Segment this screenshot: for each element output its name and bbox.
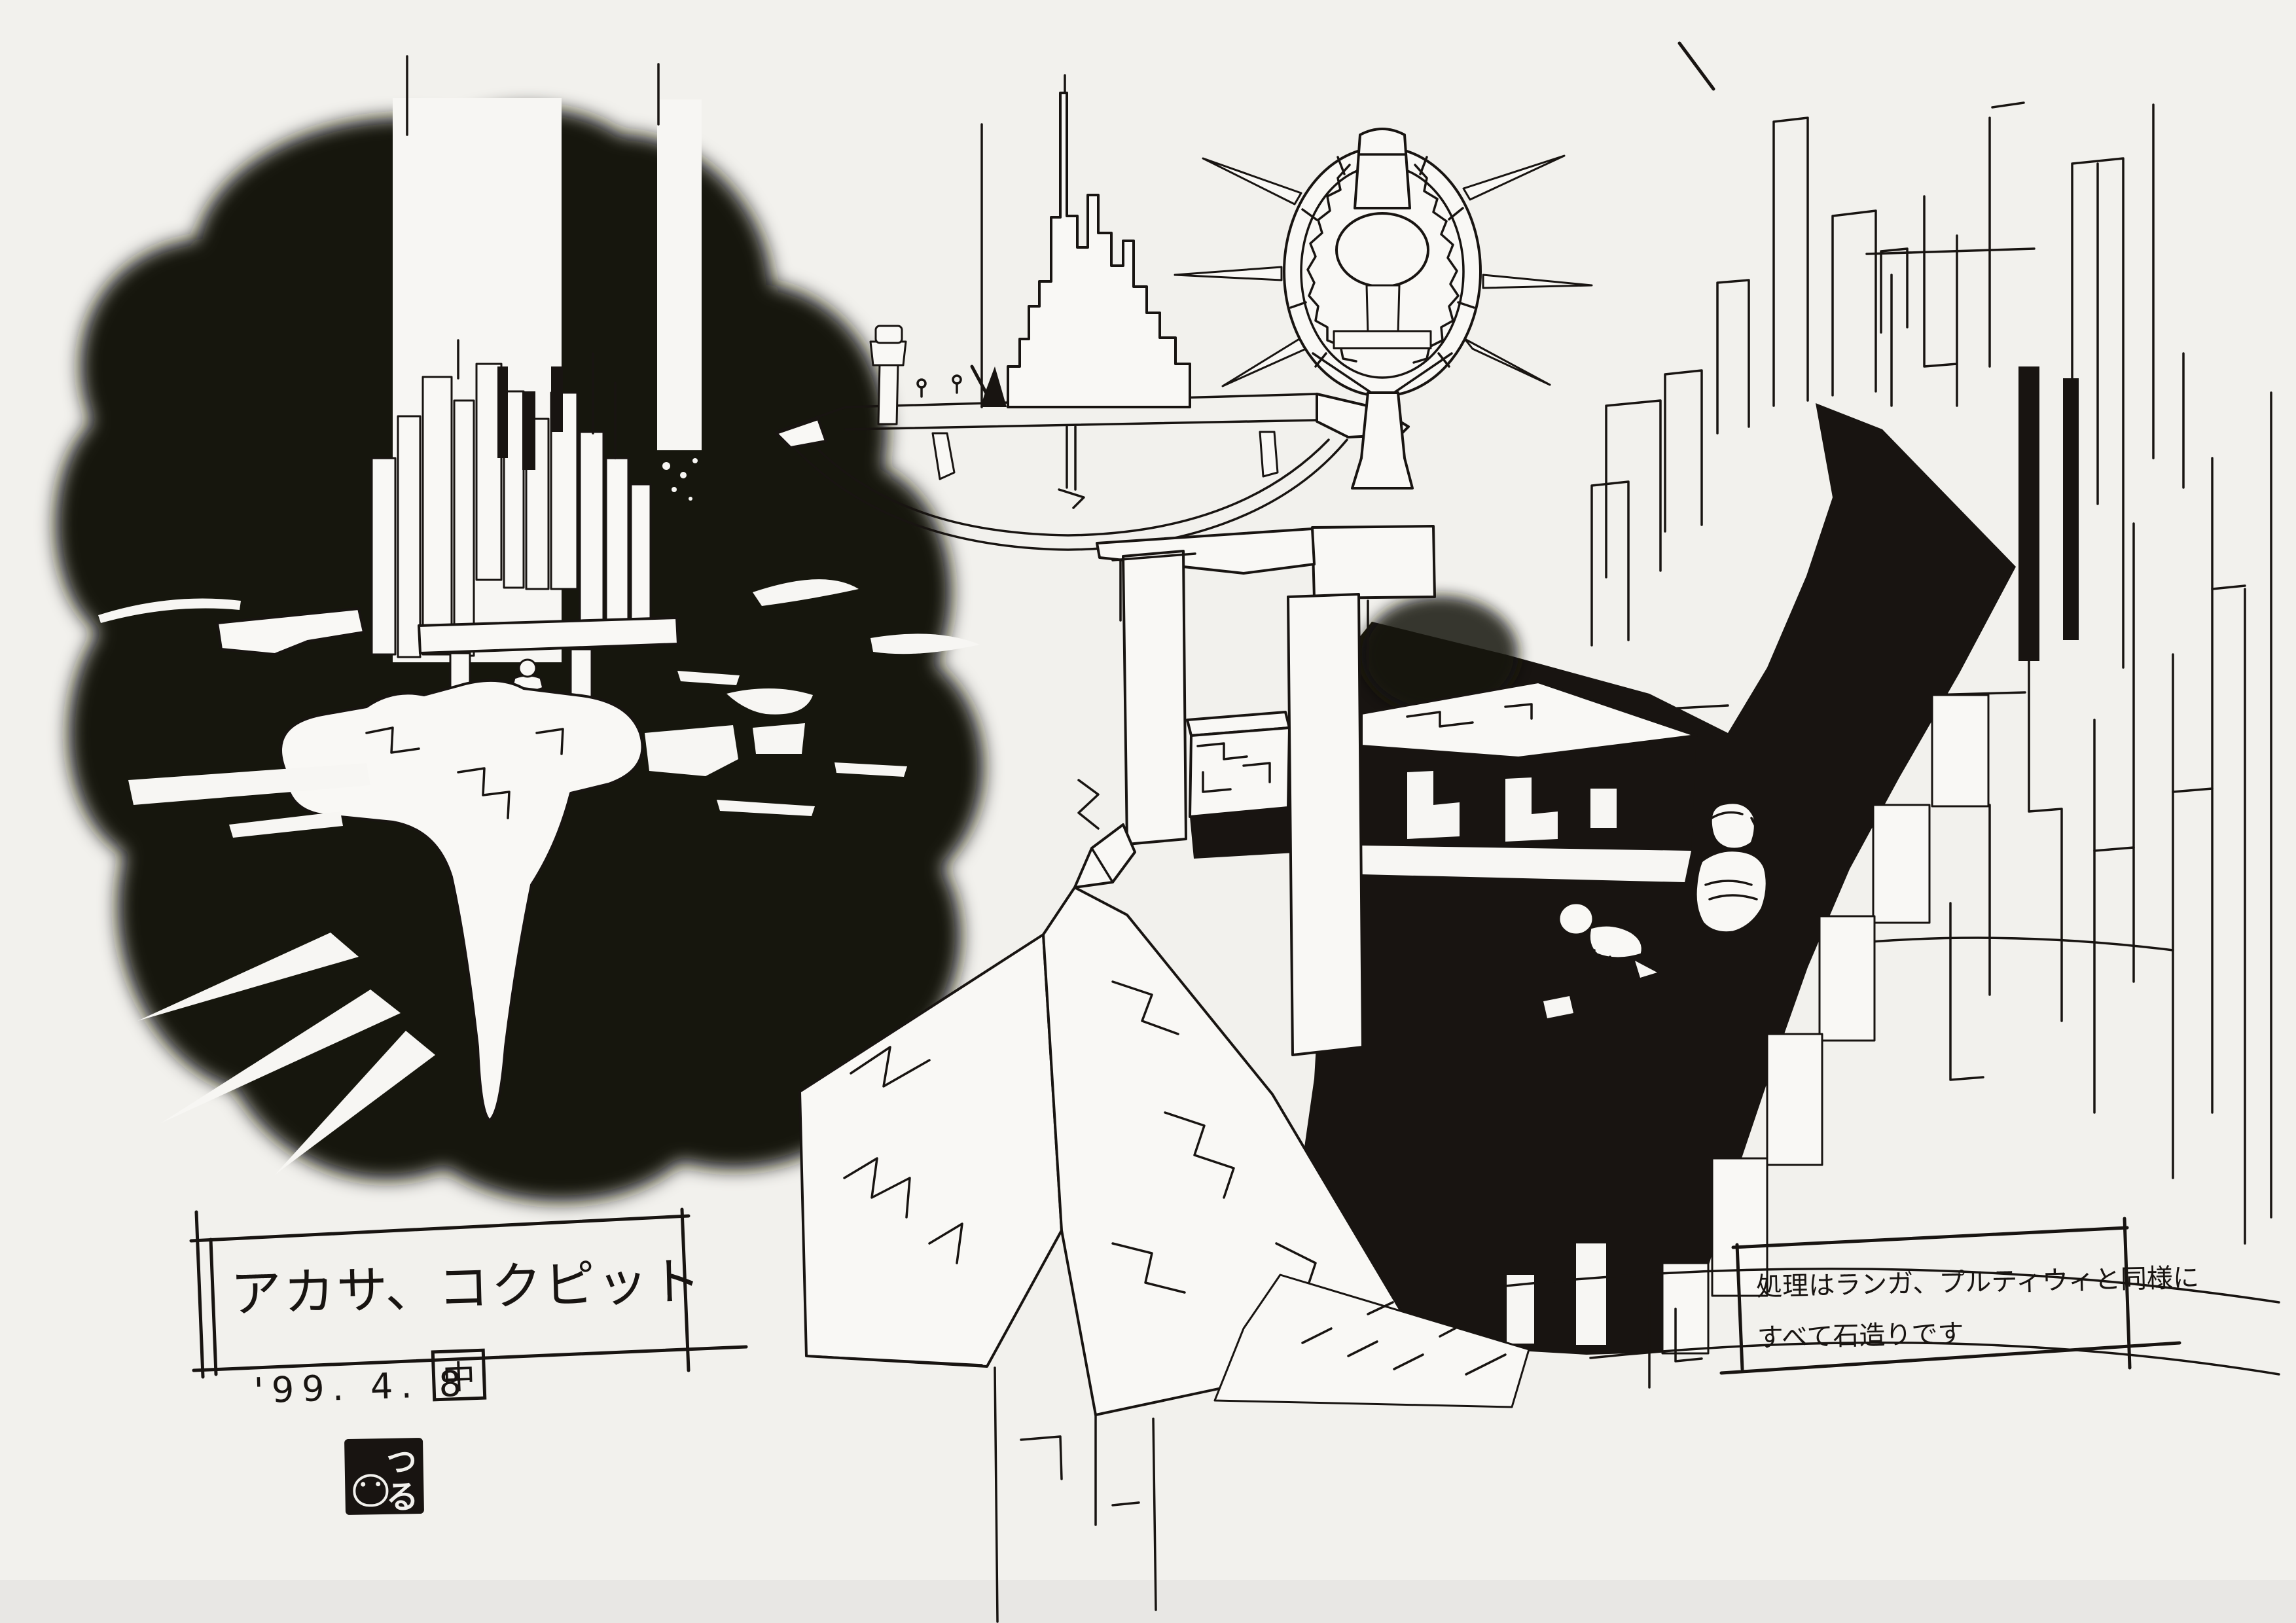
stamp-char-bottom: る — [386, 1471, 419, 1518]
approval-mark: 中 — [442, 1351, 476, 1399]
approval-mark-box: 中 — [431, 1349, 487, 1402]
engraved-blocks — [1187, 682, 1696, 882]
note-line-2: すべて石造りです — [1757, 1305, 2125, 1364]
station-top-cap — [1355, 129, 1410, 208]
station-core-sphere — [1336, 213, 1428, 287]
eye-station-sketch — [1175, 129, 1592, 488]
paper-bottom-edge — [0, 1580, 2296, 1623]
sketch-page: アカサ、コクピット '99. 4. 8 中 つ る 処理はランガ、プルティウィと… — [0, 0, 2296, 1623]
stray-pen-tick — [1679, 43, 1713, 89]
artist-seal-stamp: つ る — [344, 1438, 424, 1515]
note-text: 処理はランガ、プルティウィと同様に すべて石造りです — [1755, 1254, 2124, 1364]
title-text: アカサ、コクピット — [230, 1241, 677, 1327]
note-line-1: 処理はランガ、プルティウィと同様に — [1755, 1254, 2123, 1313]
stamp-face-doodle — [353, 1474, 389, 1507]
